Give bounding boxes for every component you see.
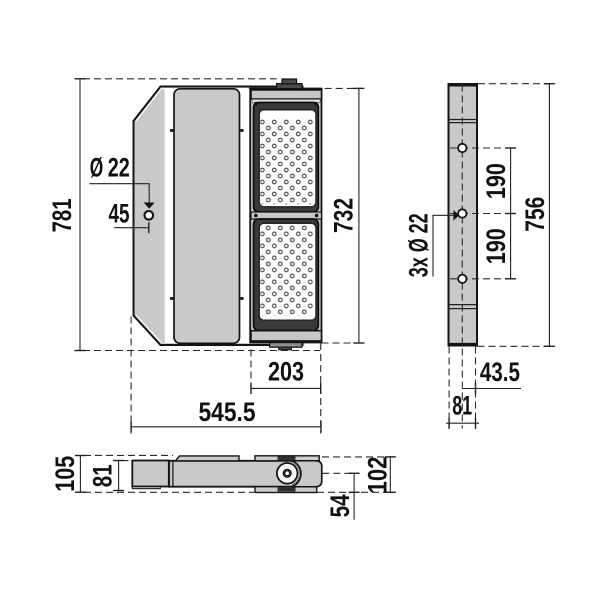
svg-text:54: 54 (325, 494, 355, 517)
svg-text:Ø: Ø (90, 153, 104, 183)
svg-text:102: 102 (363, 457, 393, 494)
svg-text:781: 781 (47, 198, 77, 232)
svg-text:3x Ø 22: 3x Ø 22 (403, 213, 433, 277)
svg-text:105: 105 (50, 456, 80, 492)
svg-text:81: 81 (88, 464, 118, 487)
svg-text:190: 190 (481, 228, 511, 264)
svg-text:756: 756 (520, 197, 550, 232)
svg-text:22: 22 (108, 153, 130, 183)
svg-text:43.5: 43.5 (480, 357, 520, 387)
svg-text:732: 732 (329, 198, 359, 233)
svg-text:190: 190 (481, 163, 511, 199)
svg-text:203: 203 (268, 357, 304, 387)
svg-text:45: 45 (109, 198, 130, 228)
svg-text:81: 81 (452, 390, 472, 420)
svg-text:545.5: 545.5 (199, 397, 256, 427)
